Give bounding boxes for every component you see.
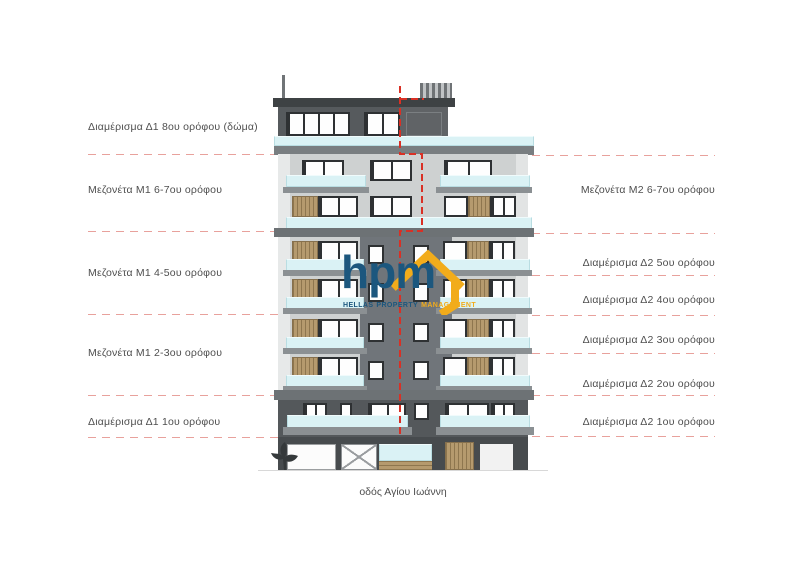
core-window xyxy=(413,361,429,380)
wood-shutter xyxy=(292,196,318,217)
balcony-slab xyxy=(283,427,412,435)
window xyxy=(489,357,515,377)
roof-slab xyxy=(273,98,455,107)
floors-6-7-block xyxy=(0,154,800,237)
wood-shutter xyxy=(467,357,489,377)
storefront-glass xyxy=(379,444,432,461)
wood-shutter xyxy=(292,241,318,261)
window xyxy=(414,403,429,420)
logo-word-hellas: HELLAS xyxy=(343,302,373,309)
balcony-glass xyxy=(286,175,366,187)
logo-wordmark: hpm xyxy=(341,249,435,295)
logo-word-management: MANAGEMENT xyxy=(421,302,476,309)
window xyxy=(443,319,467,339)
core-window xyxy=(368,323,384,342)
entrance-glass-door xyxy=(341,444,377,470)
logo-word-property: PROPERTY xyxy=(376,302,418,309)
window xyxy=(318,196,358,217)
floor-row-3 xyxy=(0,315,800,353)
antenna xyxy=(282,75,285,99)
floor-slab xyxy=(274,390,534,400)
side-opening xyxy=(480,444,513,470)
core-window xyxy=(368,361,384,380)
window xyxy=(370,160,412,181)
window xyxy=(489,319,515,339)
wood-shutter xyxy=(468,196,490,217)
wood-door xyxy=(445,442,474,470)
logo-tagline: HELLAS PROPERTY MANAGEMENT xyxy=(343,302,463,309)
balcony-slab xyxy=(436,427,534,435)
building-elevation-diagram: Διαμέρισμα Δ1 8ου ορόφου (δώμα)Μεζονέτα … xyxy=(0,0,800,565)
penthouse-door-outline xyxy=(406,112,442,136)
wood-shutter xyxy=(467,241,489,261)
street-label: οδός Αγίου Ιωάννη xyxy=(278,486,528,498)
window xyxy=(318,357,358,377)
roof-balcony-glass xyxy=(274,136,534,146)
window xyxy=(444,196,468,217)
ground-line xyxy=(258,470,548,471)
plant xyxy=(268,441,302,471)
storefront-base xyxy=(379,461,432,470)
penthouse-window xyxy=(286,112,350,136)
wood-shutter xyxy=(292,357,318,377)
floor-row-2 xyxy=(0,353,800,395)
window xyxy=(489,241,515,261)
window xyxy=(489,279,515,299)
window xyxy=(370,196,412,217)
core-window xyxy=(413,323,429,342)
floor-slab xyxy=(274,228,534,237)
wood-shutter xyxy=(292,319,318,339)
balcony-glass xyxy=(440,175,530,187)
window xyxy=(318,319,358,339)
window xyxy=(490,196,516,217)
wood-shutter xyxy=(467,279,489,299)
wood-shutter xyxy=(467,319,489,339)
wood-shutter xyxy=(292,279,318,299)
balcony-slab xyxy=(436,187,532,193)
balcony-slab xyxy=(283,187,369,193)
penthouse-window xyxy=(364,112,400,136)
pergola-slats xyxy=(420,83,452,99)
hpm-logo: hpm HELLAS PROPERTY MANAGEMENT xyxy=(335,245,470,315)
window xyxy=(443,357,467,377)
